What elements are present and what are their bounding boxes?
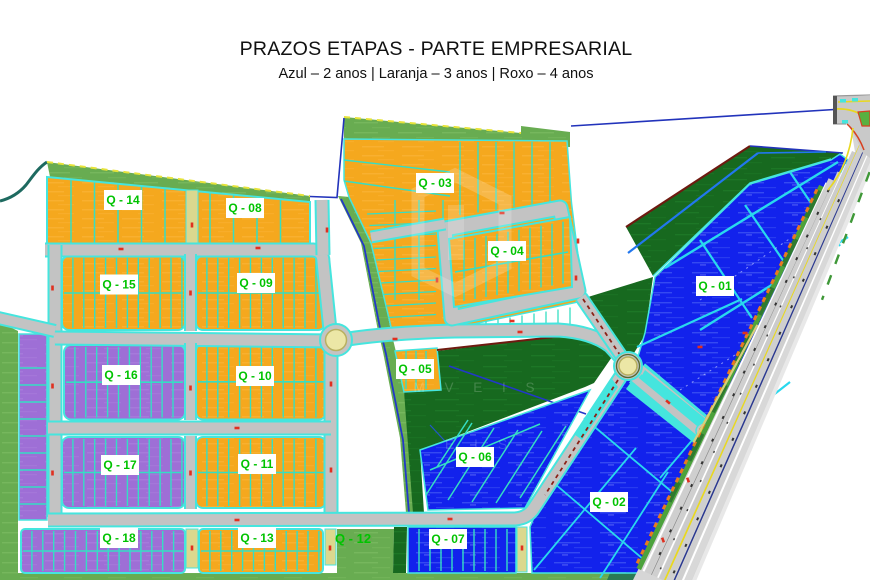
svg-text:Q - 06: Q - 06 [458,450,492,464]
svg-text:Q - 03: Q - 03 [418,176,452,190]
svg-text:Q - 01: Q - 01 [698,279,732,293]
svg-text:Q - 08: Q - 08 [228,201,262,215]
svg-text:Q - 05: Q - 05 [398,362,432,376]
svg-text:Q - 04: Q - 04 [490,244,524,258]
svg-text:M V E I S: M V E I S [413,380,542,395]
svg-text:Q - 15: Q - 15 [102,278,136,292]
svg-text:Q - 02: Q - 02 [592,495,626,509]
svg-text:Q - 13: Q - 13 [240,531,274,545]
svg-text:Q - 11: Q - 11 [241,457,274,471]
svg-text:Q - 17: Q - 17 [103,458,137,472]
svg-text:Q - 18: Q - 18 [102,531,136,545]
svg-text:PRAZOS ETAPAS - PARTE EMPRESAR: PRAZOS ETAPAS - PARTE EMPRESARIAL [240,38,633,60]
svg-text:Q - 14: Q - 14 [106,193,140,207]
svg-text:Q - 16: Q - 16 [104,368,138,382]
svg-text:Q - 12: Q - 12 [335,531,371,546]
svg-text:Q - 09: Q - 09 [239,276,273,290]
svg-text:Q - 07: Q - 07 [431,532,465,546]
svg-text:Q - 10: Q - 10 [238,369,272,383]
svg-text:Azul – 2 anos | Laranja – 3 an: Azul – 2 anos | Laranja – 3 anos | Roxo … [278,66,593,82]
